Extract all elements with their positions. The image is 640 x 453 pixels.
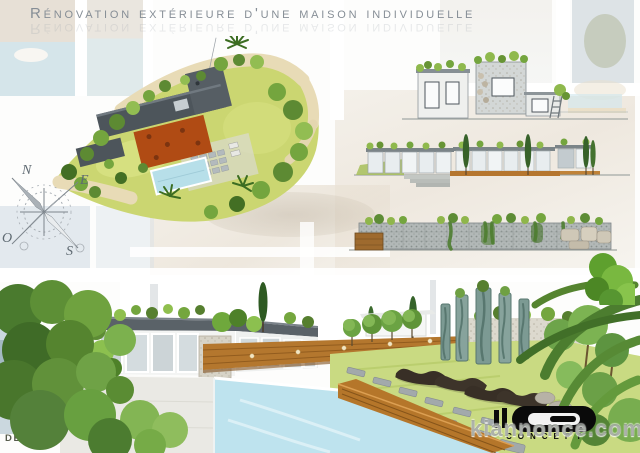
elevation2-steps [404, 175, 450, 187]
elevation1-stone-tower [476, 62, 526, 114]
compass-south-label: S [66, 244, 73, 258]
watercolor-bush [585, 253, 635, 305]
elevation-glass-pavilion [350, 125, 635, 201]
page-title-reflection: Rénovation extérieure d'une maison indiv… [30, 21, 475, 37]
compass-rose: N E S O [0, 160, 92, 258]
elevation-gabion-wall [345, 205, 635, 305]
compass-north-label: N [21, 163, 32, 178]
watermark: kiannonce.com [470, 416, 640, 442]
elevation-upper-house [400, 50, 630, 130]
presentation-board: Rénovation extérieure d'une maison indiv… [0, 0, 640, 453]
wood-planter-box [355, 233, 383, 250]
elevation1-pool-photo [568, 80, 626, 113]
compass-west-label: O [2, 231, 12, 246]
elevation2-right-wing [555, 145, 595, 168]
compass-east-label: E [79, 173, 89, 188]
page-title: Rénovation extérieure d'une maison indiv… [30, 5, 475, 22]
elevation2-left-wing [366, 148, 454, 173]
elevation1-left-block [416, 69, 470, 118]
